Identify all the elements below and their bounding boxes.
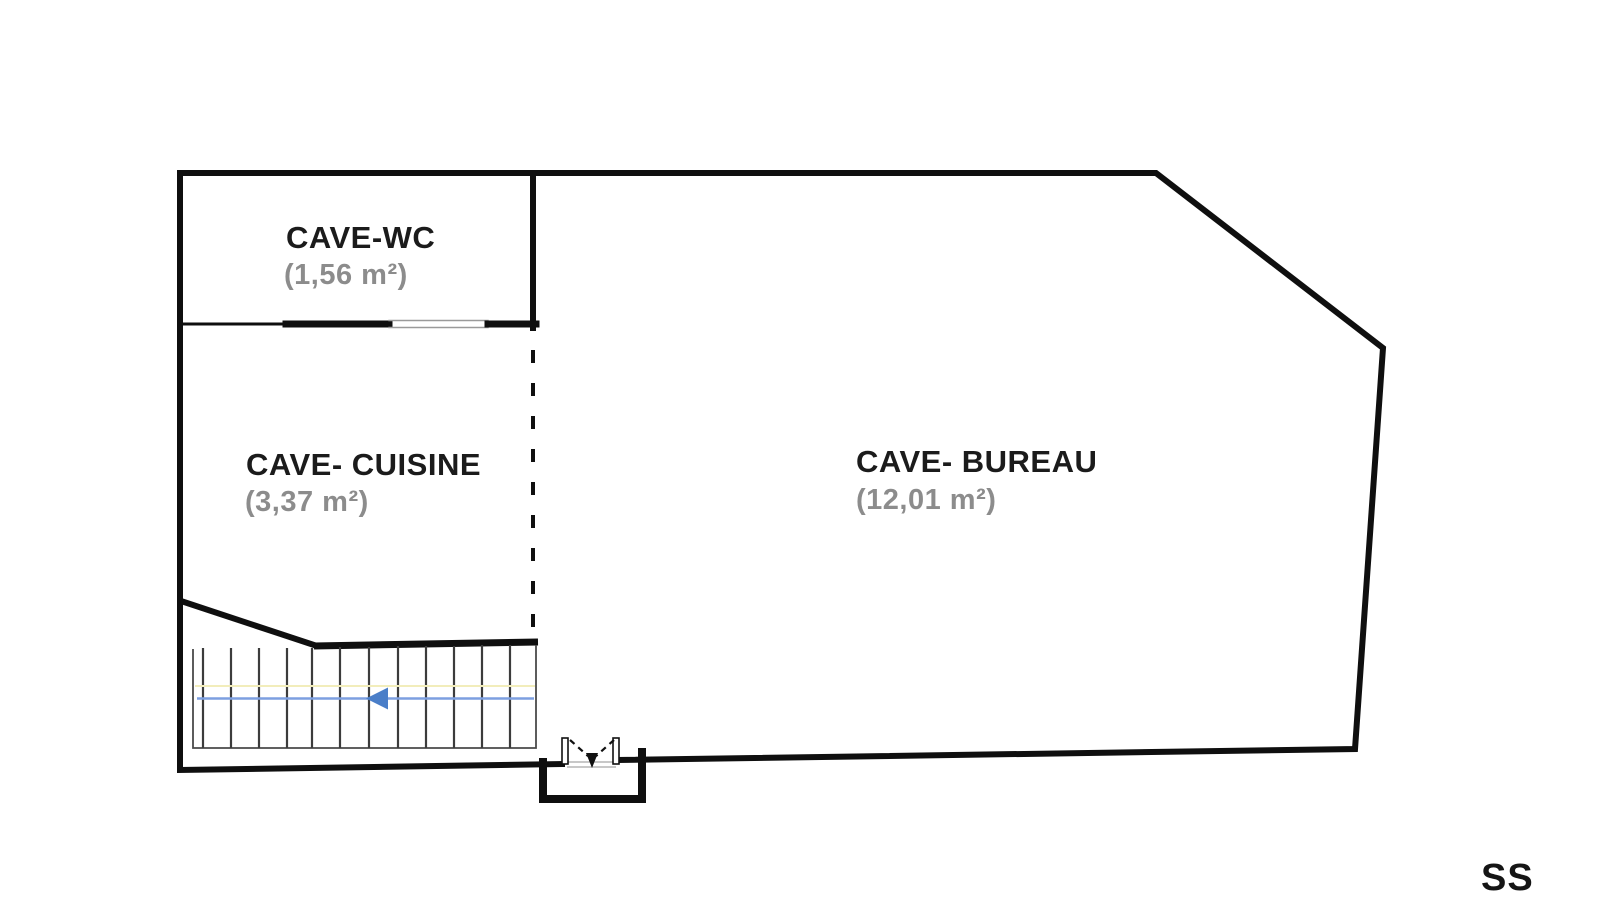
door-swing-vertex [586, 753, 598, 768]
room-name-cave-wc: CAVE-WC [286, 220, 435, 255]
stair-top-wall [314, 642, 538, 646]
room-area-cave-cuisine: (3,37 m²) [245, 486, 369, 518]
entrance-door [562, 738, 619, 768]
door-swing-right-leaf [596, 740, 614, 756]
wc-partition-wall [181, 321, 536, 328]
stair-direction-arrow [197, 688, 534, 710]
room-name-cave-bureau: CAVE- BUREAU [856, 444, 1097, 479]
room-labels: CAVE-WC (1,56 m²) CAVE- CUISINE (3,37 m²… [245, 220, 1097, 518]
floor-plan-canvas: CAVE-WC (1,56 m²) CAVE- CUISINE (3,37 m²… [0, 0, 1600, 917]
door-jamb-left [562, 738, 568, 764]
stair-treads [203, 645, 510, 748]
door-jamb-right [613, 738, 619, 764]
room-area-cave-wc: (1,56 m²) [284, 259, 408, 291]
door-swing-left-leaf [570, 740, 588, 756]
room-area-cave-bureau: (12,01 m²) [856, 484, 996, 516]
stair-outline [193, 645, 536, 748]
stair-slant-wall [181, 601, 317, 646]
floor-plan-drawing: CAVE-WC (1,56 m²) CAVE- CUISINE (3,37 m²… [0, 0, 1600, 917]
level-label: SS [1481, 857, 1534, 899]
wc-door-opening [389, 321, 488, 328]
room-name-cave-cuisine: CAVE- CUISINE [246, 447, 481, 482]
staircase [181, 601, 538, 748]
